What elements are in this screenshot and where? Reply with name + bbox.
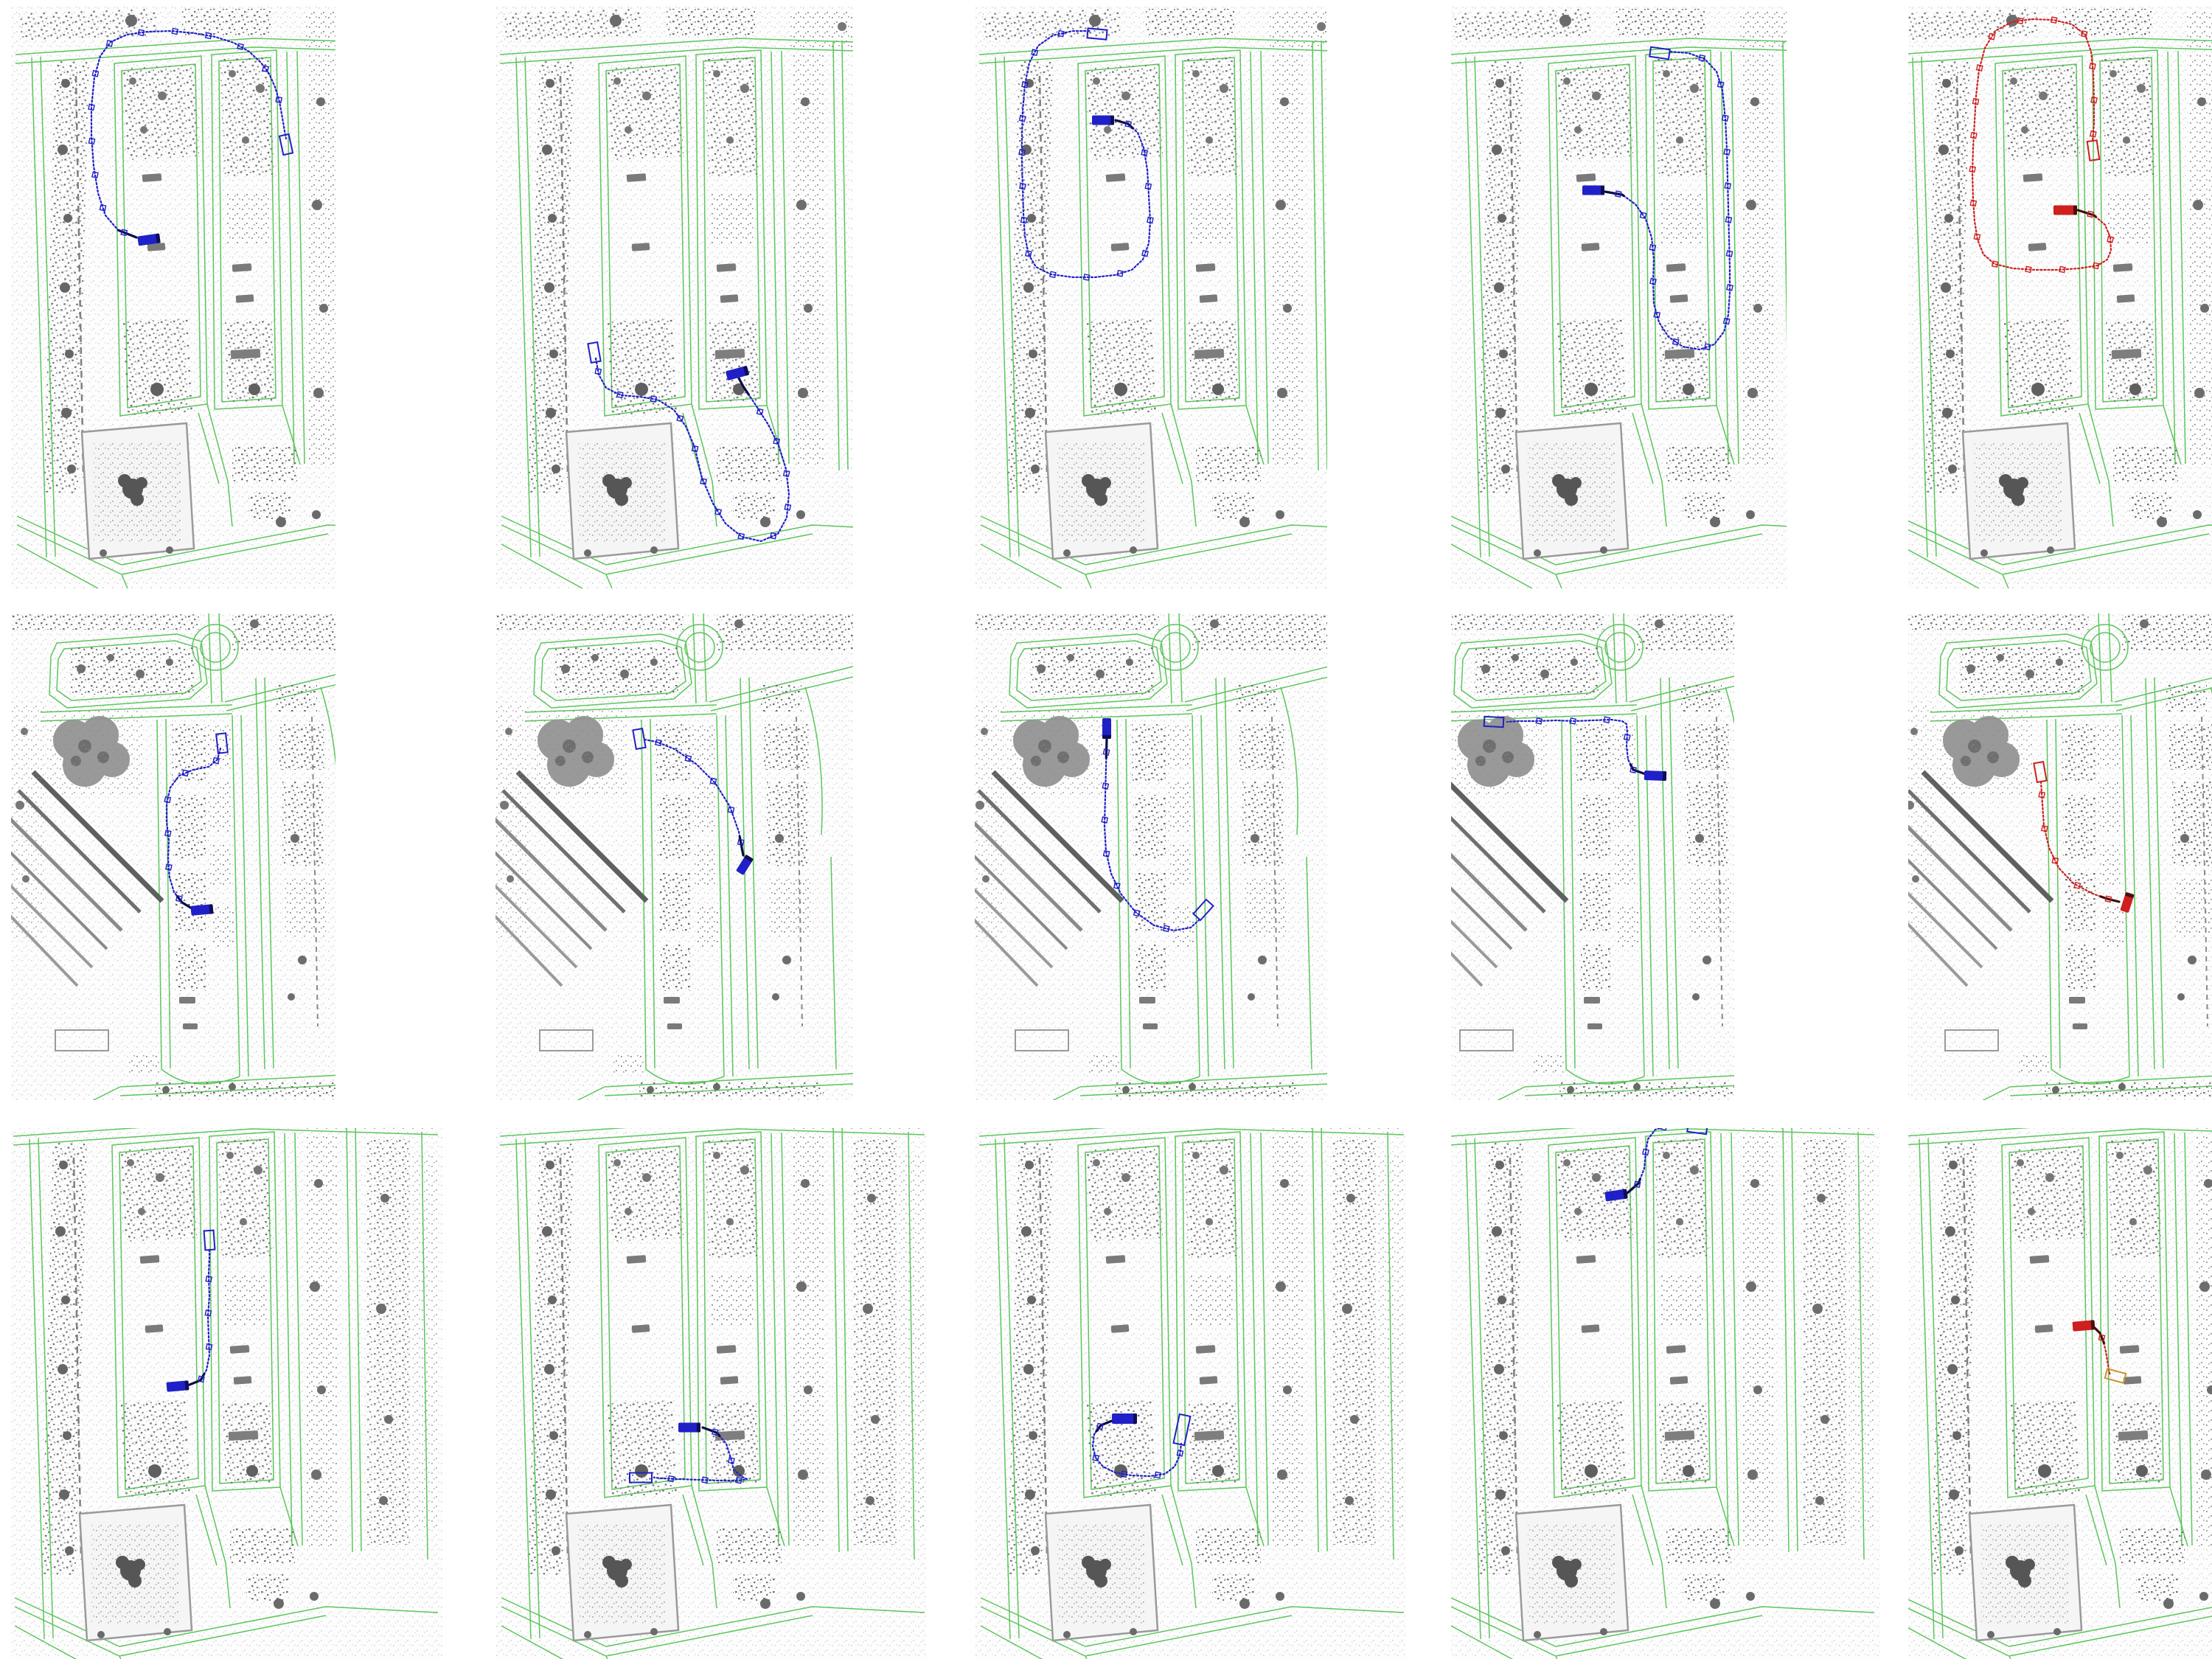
- map-canvas: [1908, 613, 2212, 1100]
- ego-vehicle-box: [1092, 116, 1114, 125]
- scene-a-background: [495, 1128, 927, 1659]
- map-canvas: [975, 1128, 1406, 1659]
- scene-a-background: [11, 1128, 442, 1659]
- ego-vehicle-box: [190, 904, 213, 916]
- map-tile-r1c5: [1908, 6, 2212, 592]
- map-canvas: [11, 1128, 442, 1659]
- map-tile-r1c3: [975, 6, 1327, 592]
- ego-vehicle-box: [2072, 1320, 2095, 1332]
- map-tile-r2c4: [1451, 613, 1734, 1100]
- scene-b-background: [975, 613, 1327, 1100]
- scene-b-background: [1451, 613, 1734, 1100]
- scene-b-background: [11, 613, 335, 1100]
- map-canvas: [495, 613, 853, 1100]
- map-canvas: [1451, 613, 1734, 1100]
- scene-a-background: [975, 1128, 1406, 1659]
- ego-vehicle-box: [1582, 186, 1604, 195]
- map-tile-r2c1: [11, 613, 335, 1100]
- map-tile-r2c2: [495, 613, 853, 1100]
- ego-vehicle-box: [2053, 206, 2077, 215]
- map-canvas: [1908, 6, 2212, 592]
- map-tile-r2c3: [975, 613, 1327, 1100]
- figure-grid: [0, 0, 2212, 1659]
- map-canvas: [1451, 6, 1787, 592]
- scene-a-background: [1451, 6, 1787, 588]
- scene-a-background: [495, 6, 853, 588]
- map-canvas: [11, 6, 335, 592]
- map-tile-r3c4: [1451, 1128, 1882, 1659]
- map-tile-r3c1: [11, 1128, 442, 1659]
- ego-vehicle-box: [678, 1423, 700, 1433]
- ego-vehicle-box: [1644, 771, 1666, 781]
- ego-vehicle-box: [1102, 718, 1111, 739]
- scene-a-background: [1908, 6, 2212, 588]
- map-tile-r1c2: [495, 6, 853, 592]
- map-canvas: [975, 6, 1327, 592]
- map-canvas: [1908, 1128, 2212, 1659]
- scene-a-background: [1908, 1128, 2212, 1659]
- map-canvas: [1451, 1128, 1882, 1659]
- map-canvas: [975, 613, 1327, 1100]
- ego-vehicle-box: [1112, 1413, 1137, 1424]
- scene-a-background: [975, 6, 1327, 588]
- map-tile-r3c5: [1908, 1128, 2212, 1659]
- ego-vehicle-box: [166, 1380, 189, 1392]
- map-tile-r1c4: [1451, 6, 1787, 592]
- map-tile-r2c5: [1908, 613, 2212, 1100]
- map-canvas: [11, 613, 335, 1100]
- map-tile-r3c3: [975, 1128, 1406, 1659]
- map-tile-r1c1: [11, 6, 335, 592]
- scene-b-background: [1908, 613, 2212, 1100]
- map-tile-r3c2: [495, 1128, 927, 1659]
- scene-a-background: [1451, 1128, 1880, 1659]
- map-canvas: [495, 1128, 927, 1659]
- scene-a-background: [11, 6, 335, 588]
- scene-b-background: [495, 613, 853, 1100]
- map-canvas: [495, 6, 853, 592]
